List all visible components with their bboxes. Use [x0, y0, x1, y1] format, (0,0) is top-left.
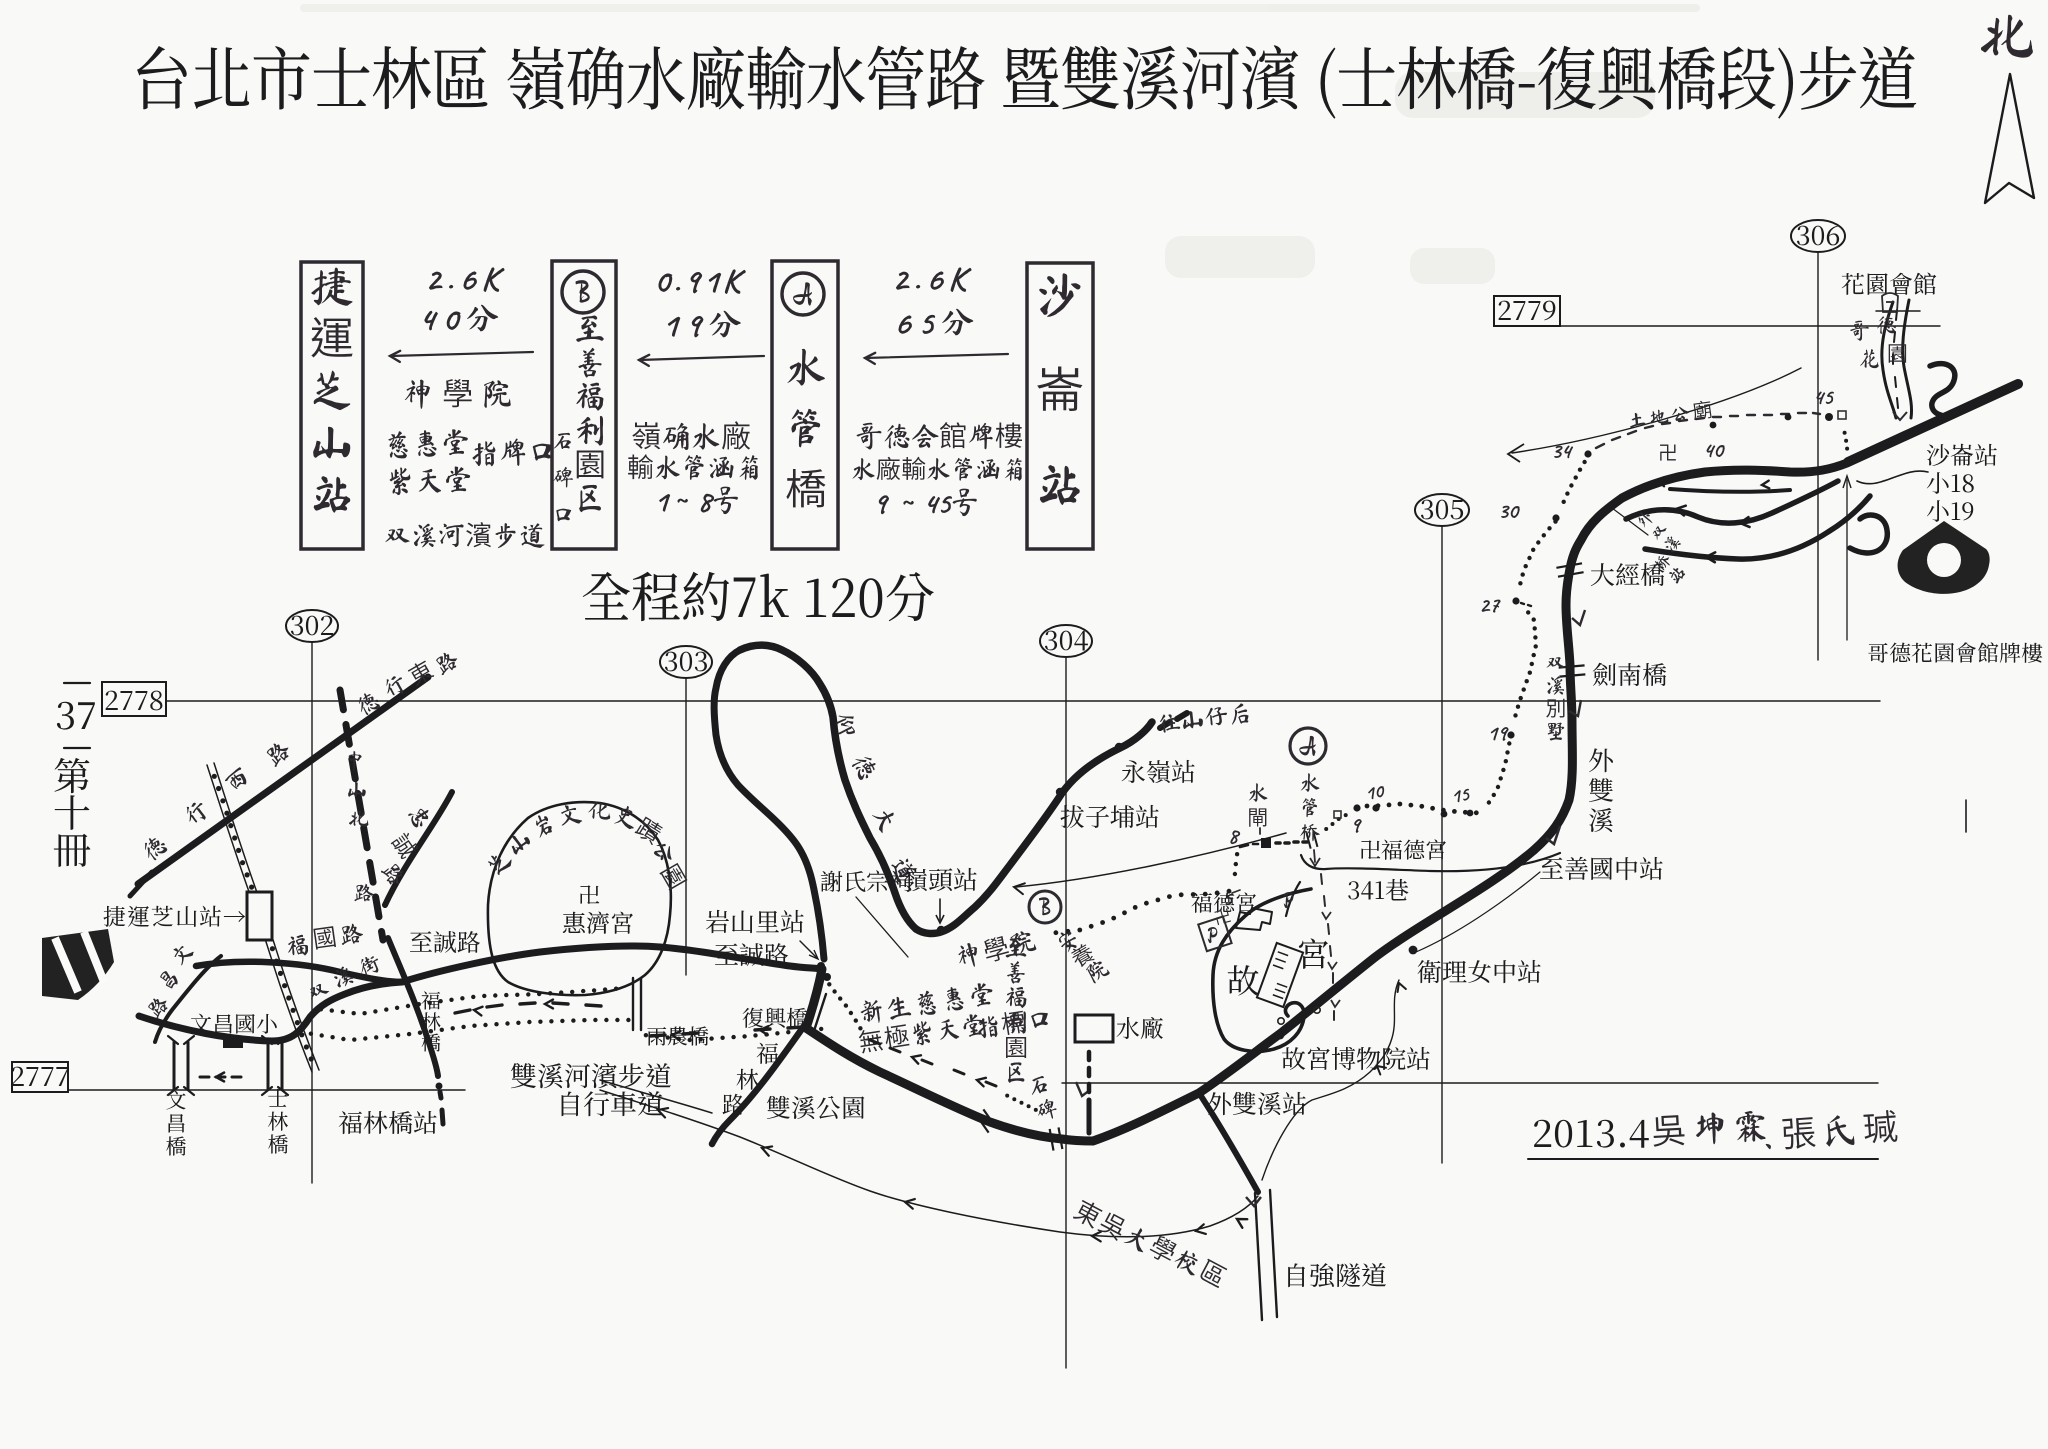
svg-text:站: 站 — [310, 472, 354, 516]
svg-text:27: 27 — [1479, 591, 1501, 619]
svg-text:嶺确水廠: 嶺确水廠 — [631, 420, 751, 451]
svg-text:水廠: 水廠 — [1116, 1009, 1164, 1044]
svg-text:路: 路 — [338, 920, 365, 947]
svg-text:慈惠堂: 慈惠堂 — [383, 426, 471, 460]
svg-text:水廠輸水管涵箱: 水廠輸水管涵箱 — [851, 456, 1026, 481]
svg-text:P: P — [1207, 925, 1218, 947]
svg-text:文: 文 — [557, 800, 585, 828]
svg-text:運: 運 — [310, 316, 354, 360]
svg-text:水: 水 — [1248, 782, 1269, 803]
svg-text:崙: 崙 — [1036, 365, 1084, 413]
svg-text:復興橋: 復興橋 — [742, 1002, 808, 1033]
svg-text:路: 路 — [722, 1087, 745, 1120]
svg-text:9 ～45号: 9 ～45号 — [873, 484, 980, 522]
svg-text:嶺頭站: 嶺頭站 — [903, 861, 978, 897]
svg-text:捷: 捷 — [310, 264, 354, 308]
svg-text:B: B — [1038, 895, 1051, 919]
svg-text:双: 双 — [1546, 652, 1567, 673]
svg-text:305: 305 — [1420, 488, 1465, 527]
svg-text:桥: 桥 — [1300, 822, 1321, 843]
svg-text:哥德花園會館牌樓: 哥德花園會館牌樓 — [1867, 637, 2043, 668]
svg-text:化: 化 — [587, 798, 612, 823]
svg-text:45: 45 — [1813, 383, 1835, 411]
svg-text:中: 中 — [345, 750, 366, 771]
svg-text:沙: 沙 — [1036, 270, 1084, 318]
svg-text:德: 德 — [1876, 314, 1897, 335]
svg-text:神學院: 神學院 — [402, 378, 522, 409]
svg-text:水: 水 — [1300, 772, 1321, 793]
svg-text:劍南橋: 劍南橋 — [1592, 656, 1667, 692]
svg-text:至: 至 — [1004, 935, 1028, 959]
svg-text:花園會館: 花園會館 — [1841, 265, 1937, 300]
svg-text:小19: 小19 — [1926, 492, 1975, 527]
svg-text:冊: 冊 — [53, 820, 91, 875]
svg-text:碑: 碑 — [552, 465, 574, 489]
svg-text:306: 306 — [1796, 214, 1841, 253]
svg-text:站: 站 — [1036, 460, 1084, 508]
svg-text:利: 利 — [574, 414, 606, 446]
svg-text:石: 石 — [552, 429, 574, 451]
svg-text:304: 304 — [1044, 619, 1089, 658]
svg-text:大經橋: 大經橋 — [1590, 556, 1665, 592]
svg-text:善: 善 — [574, 346, 606, 378]
svg-text:1～8号: 1～8号 — [654, 482, 741, 520]
svg-text:山: 山 — [347, 779, 368, 800]
svg-text:福: 福 — [284, 932, 311, 959]
svg-text:溪: 溪 — [1546, 675, 1567, 696]
svg-text:2013.4: 2013.4 — [1532, 1103, 1650, 1158]
svg-text:2779: 2779 — [1497, 289, 1557, 328]
svg-text:双溪河濱步道: 双溪河濱步道 — [384, 522, 546, 549]
svg-text:至誠路: 至誠路 — [714, 936, 789, 972]
svg-text:卍福德宮: 卍福德宮 — [1359, 834, 1447, 865]
svg-text:19分: 19分 — [662, 304, 750, 347]
svg-text:自強隧道: 自強隧道 — [1283, 1256, 1387, 1293]
svg-text:区: 区 — [574, 482, 606, 514]
svg-text:北: 北 — [349, 808, 370, 829]
svg-text:自行車道: 自行車道 — [556, 1083, 664, 1122]
svg-text:拔子埔站: 拔子埔站 — [1060, 798, 1160, 834]
svg-text:捷運芝山站→: 捷運芝山站→ — [103, 899, 247, 932]
svg-text:台北市士林區 嶺确水廠輸水管路 暨雙溪河濱 (士林橋-復興橋: 台北市士林區 嶺确水廠輸水管路 暨雙溪河濱 (士林橋-復興橋段)步道 — [131, 25, 1918, 125]
svg-text:輸水管涵箱: 輸水管涵箱 — [627, 453, 762, 481]
svg-text:吳坤霖: 吳坤霖 — [1650, 1108, 1775, 1149]
svg-text:外雙溪站: 外雙溪站 — [1207, 1085, 1307, 1121]
svg-text:至: 至 — [574, 312, 606, 344]
svg-text:園: 園 — [1887, 343, 1908, 364]
svg-text:P: P — [1283, 890, 1294, 912]
svg-text:管: 管 — [1300, 797, 1321, 818]
svg-text:0.91K: 0.91K — [654, 260, 746, 303]
svg-text:墅: 墅 — [1546, 721, 1567, 742]
svg-text:雙溪公園: 雙溪公園 — [766, 1089, 866, 1125]
svg-text:橋: 橋 — [785, 468, 827, 510]
svg-text:雨農橋: 雨農橋 — [646, 1021, 709, 1051]
svg-text:A: A — [793, 279, 813, 309]
svg-text:福: 福 — [1004, 985, 1028, 1009]
svg-text:哥德会館牌樓: 哥德会館牌樓 — [855, 422, 1023, 450]
svg-text:卍: 卍 — [1658, 443, 1678, 463]
svg-text:区: 区 — [1004, 1060, 1028, 1084]
svg-text:至善國中站: 至善國中站 — [1539, 850, 1664, 886]
svg-text:園: 園 — [574, 448, 606, 480]
svg-text:37: 37 — [55, 685, 97, 740]
svg-text:衛理女中站: 衛理女中站 — [1417, 953, 1542, 989]
svg-text:40: 40 — [1703, 436, 1725, 464]
svg-text:故: 故 — [1227, 956, 1260, 1003]
svg-text:指牌口: 指牌口 — [469, 435, 557, 469]
svg-text:故宮博物院站: 故宮博物院站 — [1281, 1040, 1431, 1076]
svg-text:管: 管 — [785, 407, 827, 449]
svg-text:341巷: 341巷 — [1347, 871, 1409, 906]
svg-text:謝氏宗祠: 謝氏宗祠 — [820, 864, 912, 897]
svg-text:全程約7k 120分: 全程約7k 120分 — [581, 555, 935, 633]
svg-text:福林橋站: 福林橋站 — [338, 1104, 438, 1140]
svg-text:閘: 閘 — [1248, 807, 1269, 828]
svg-text:惠濟宮: 惠濟宮 — [562, 904, 634, 939]
svg-text:65分: 65分 — [894, 302, 983, 345]
svg-text:文昌國小: 文昌國小 — [190, 1008, 278, 1039]
svg-text:別: 別 — [1546, 698, 1567, 719]
svg-text:19: 19 — [1487, 719, 1509, 747]
svg-text:善: 善 — [1004, 960, 1028, 985]
svg-text:至誠路: 至誠路 — [409, 923, 481, 958]
svg-text:紫天堂: 紫天堂 — [385, 464, 473, 496]
svg-text:山: 山 — [310, 420, 354, 464]
svg-text:橋: 橋 — [268, 1129, 289, 1159]
svg-text:水: 水 — [785, 346, 827, 388]
svg-text:2778: 2778 — [104, 679, 164, 718]
svg-text:40分: 40分 — [419, 298, 508, 341]
svg-text:永嶺站: 永嶺站 — [1121, 753, 1196, 789]
svg-text:30: 30 — [1498, 497, 1520, 525]
svg-text:B: B — [575, 277, 590, 307]
svg-text:2777: 2777 — [10, 1055, 70, 1094]
svg-text:路: 路 — [354, 882, 375, 903]
svg-text:福: 福 — [574, 380, 606, 412]
svg-text:2.6K: 2.6K — [892, 258, 972, 301]
svg-text:302: 302 — [290, 604, 335, 643]
svg-text:溪: 溪 — [1588, 801, 1614, 838]
svg-text:2.6K: 2.6K — [425, 258, 505, 301]
svg-text:福: 福 — [756, 1036, 779, 1069]
svg-text:34: 34 — [1551, 437, 1574, 465]
svg-text:口: 口 — [552, 503, 574, 525]
svg-text:303: 303 — [664, 640, 709, 679]
svg-text:橋: 橋 — [166, 1131, 187, 1161]
svg-text:A: A — [1299, 733, 1316, 759]
svg-text:宮: 宮 — [1297, 929, 1330, 976]
svg-text:芝: 芝 — [310, 368, 354, 412]
svg-text:國: 國 — [311, 924, 338, 951]
svg-text:北: 北 — [1979, 7, 2035, 63]
svg-text:哥: 哥 — [1849, 320, 1870, 341]
svg-text:花: 花 — [1859, 348, 1880, 369]
svg-text:園: 園 — [1004, 1035, 1028, 1059]
svg-text:岩山里站: 岩山里站 — [705, 903, 805, 939]
